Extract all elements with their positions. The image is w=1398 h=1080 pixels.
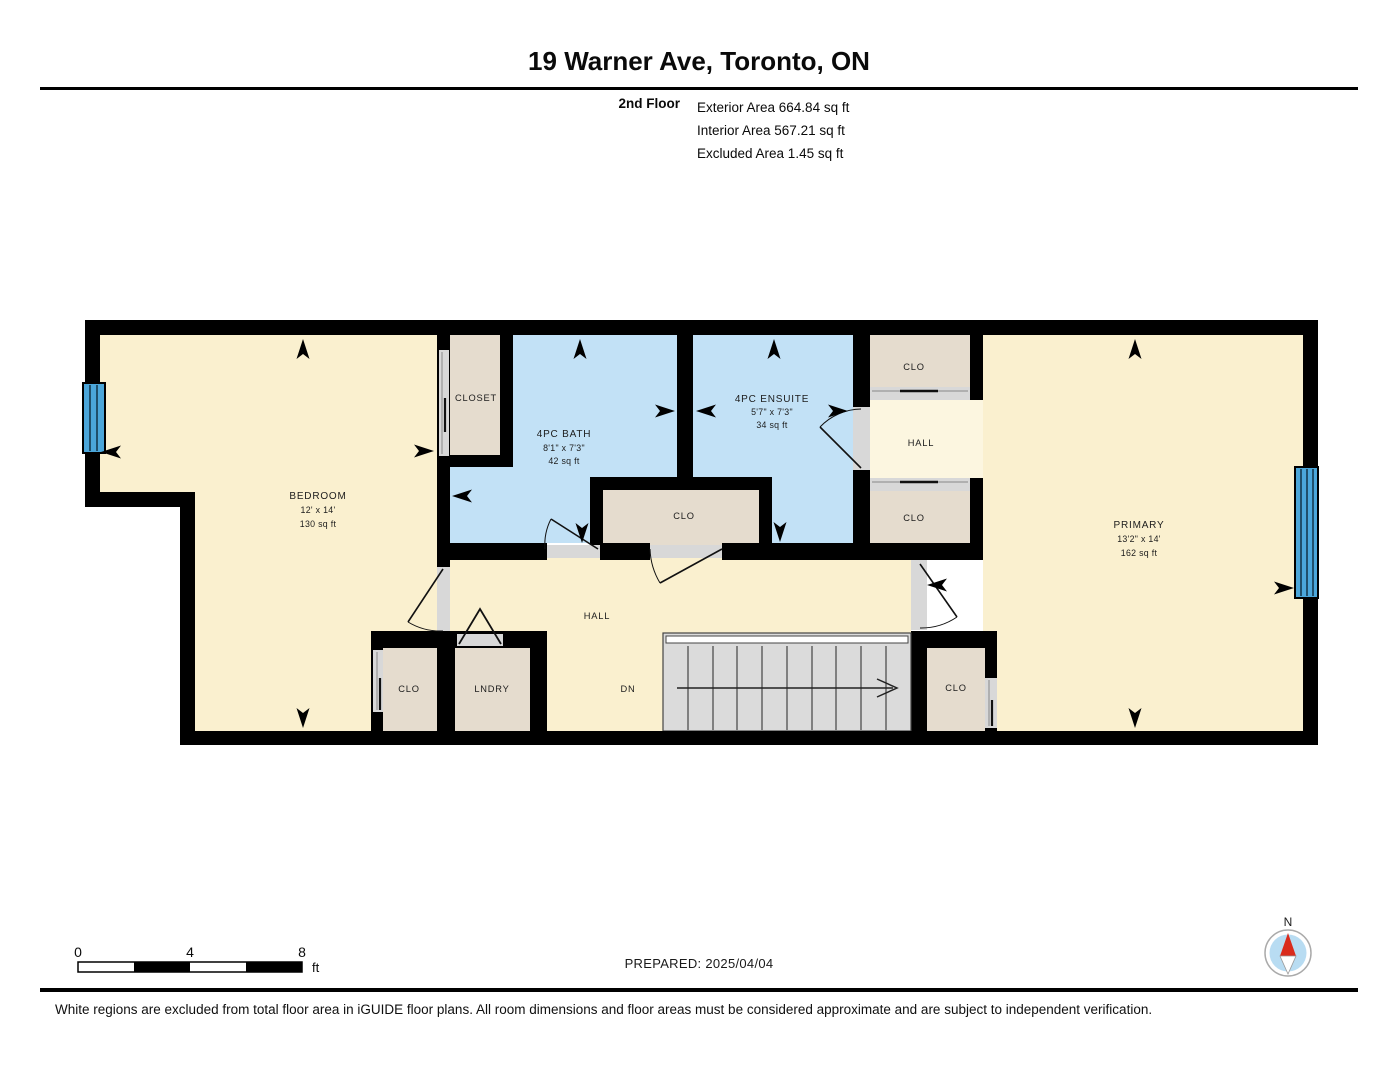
primary-area: 162 sq ft <box>1121 548 1158 558</box>
primary-dims: 13'2" x 14' <box>1117 534 1161 544</box>
hall-main-label: HALL <box>584 611 610 621</box>
primary-label: PRIMARY <box>1114 520 1165 531</box>
compass-north-label: N <box>1284 915 1293 929</box>
clo-upper-top-label: CLO <box>903 362 925 372</box>
hall-upper-label: HALL <box>908 438 934 448</box>
window-right <box>1295 467 1318 598</box>
floorplan-diagram: BEDROOM 12' x 14' 130 sq ft CLOSET 4PC B… <box>0 0 1398 1080</box>
ensuite-area: 34 sq ft <box>756 420 788 430</box>
primary-clo-sliding-door <box>985 678 997 728</box>
clo-primary-label: CLO <box>945 683 967 693</box>
stairs-dn-label: DN <box>620 684 635 694</box>
clo-bedroom-label: CLO <box>398 684 420 694</box>
disclaimer-text: White regions are excluded from total fl… <box>55 1002 1355 1017</box>
window-left <box>83 383 105 453</box>
footer-divider <box>40 988 1358 992</box>
bedroom-area: 130 sq ft <box>300 519 337 529</box>
clo-middle-label: CLO <box>673 511 695 521</box>
bath-dims: 8'1" x 7'3" <box>543 443 585 453</box>
staircase <box>663 633 911 731</box>
clo-upper-bottom-label: CLO <box>903 513 925 523</box>
bedroom-label: BEDROOM <box>289 491 346 502</box>
ensuite-label: 4PC ENSUITE <box>735 394 809 405</box>
closet-label: CLOSET <box>455 393 497 403</box>
floorplan-page: 19 Warner Ave, Toronto, ON 2nd Floor Ext… <box>0 0 1398 1080</box>
bedroom-clo-sliding-door <box>373 650 383 712</box>
bath-label: 4PC BATH <box>537 429 592 440</box>
laundry-label: LNDRY <box>474 684 509 694</box>
prepared-date: PREPARED: 2025/04/04 <box>0 956 1398 971</box>
bath-area: 42 sq ft <box>548 456 580 466</box>
bedroom-closet-sliding-door <box>439 350 449 456</box>
primary-door <box>911 560 957 630</box>
ensuite-dims: 5'7" x 7'3" <box>751 407 793 417</box>
bedroom-dims: 12' x 14' <box>301 505 336 515</box>
